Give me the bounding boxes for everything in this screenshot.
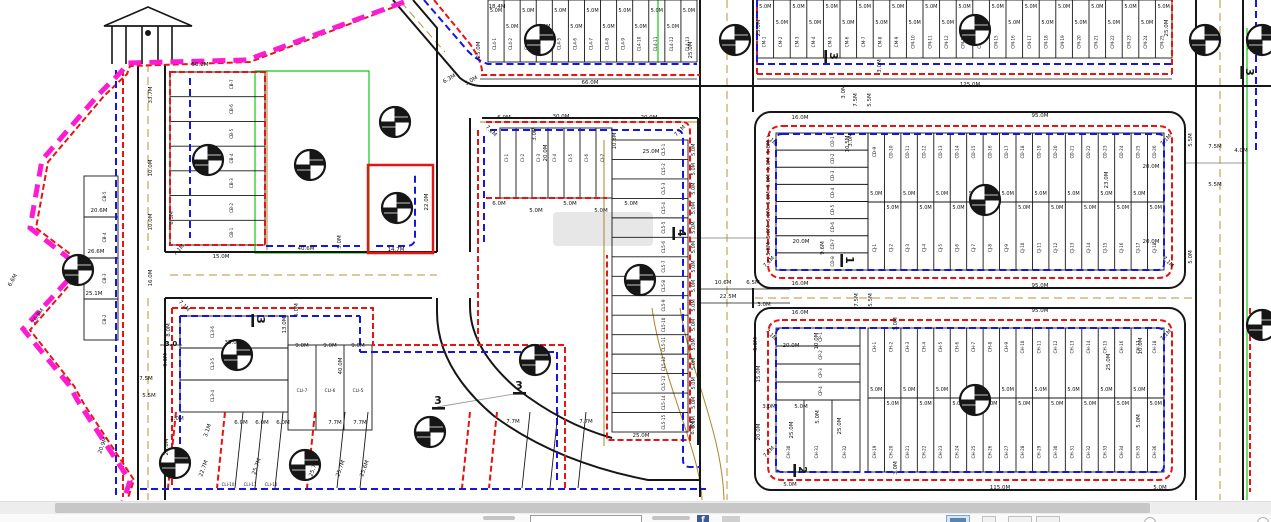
dim-label: CH-10	[1020, 340, 1025, 353]
dim-label: CJ-7	[971, 244, 976, 253]
dim-label: CI-7	[600, 154, 605, 163]
dim-label: 7.7M	[353, 420, 367, 426]
dim-label: 5.0M	[1041, 20, 1053, 26]
dim-label: 5.0M	[1002, 191, 1014, 197]
horizontal-scrollbar[interactable]	[0, 501, 1271, 514]
dim-label: CM-11	[927, 35, 932, 49]
dim-label: 5.0M	[1117, 401, 1129, 407]
dim-label: CH-21	[905, 445, 910, 458]
dim-label: 115.0M	[990, 485, 1011, 491]
dim-label: CD-24	[1119, 145, 1124, 158]
dim-label: 5.0M	[925, 4, 937, 10]
dim-label: CD-15	[971, 145, 976, 158]
dim-label: 5.0M	[766, 225, 772, 239]
dim-label: 5.0M	[691, 319, 697, 331]
dim-label: 7.1M	[673, 124, 687, 138]
dim-label: 3.0	[165, 340, 178, 348]
dim-label: 23.0M	[1104, 171, 1110, 188]
dim-label: 5.0M	[887, 401, 899, 407]
dim-label: CH-32	[1086, 445, 1091, 458]
dim-label: 66.0M	[582, 80, 599, 86]
dim-label: CLI-7	[297, 388, 308, 393]
dim-label: CL4-10	[637, 36, 642, 51]
survey-marker-icon	[720, 25, 750, 55]
dim-label: CJ-3	[905, 244, 910, 253]
survey-marker-icon	[63, 255, 93, 285]
dim-label: CH-30	[786, 445, 791, 458]
dim-label: 15.0M	[756, 365, 762, 382]
dim-label: 95.0M	[1032, 283, 1049, 289]
dim-label: CB-4	[102, 232, 107, 242]
dim-label: 5.0M	[815, 410, 821, 424]
dim-label: CH-32	[842, 445, 847, 458]
dim-label: 16.0M	[792, 310, 809, 316]
dim-label: CD-21	[1070, 145, 1075, 158]
dim-label: 9.0M	[351, 343, 365, 349]
dim-label: 5.0M	[759, 4, 771, 10]
dim-label: CL5-9	[661, 299, 666, 311]
dim-label: 25.6M	[359, 459, 371, 477]
dim-label: CL5-2	[661, 163, 666, 175]
dim-label: 10.0M	[814, 332, 820, 349]
dim-label: CM-12	[944, 35, 949, 49]
dim-label: CB-4	[229, 153, 234, 163]
dim-label: CD-7	[830, 239, 835, 250]
dim-label: CM-24	[1143, 35, 1148, 49]
dim-label: CL4-9	[621, 38, 626, 50]
dim-label: CD-16	[987, 145, 992, 158]
dim-label: CM-4	[811, 36, 816, 47]
dim-label: 30.0M	[553, 114, 570, 120]
dim-label: 5.0M	[1051, 401, 1063, 407]
dim-label: 5.0M	[1136, 414, 1142, 428]
dim-label: 5.0M	[1133, 191, 1145, 197]
scrollbar-thumb[interactable]	[55, 503, 1150, 513]
dim-label: 22.7M	[198, 459, 210, 477]
dim-label: 95.0M	[1032, 308, 1049, 314]
dim-label: 5.5M	[1208, 182, 1222, 188]
dim-label: 5.8M	[766, 140, 772, 154]
dim-label: CD-23	[1102, 145, 1107, 158]
dim-label: CM-2	[778, 36, 783, 47]
dim-label: CH-12	[1053, 340, 1058, 353]
dim-label: CD-4	[830, 187, 835, 198]
tool-icon[interactable]	[1008, 516, 1032, 522]
tool-icon[interactable]	[982, 516, 996, 522]
dim-label: 20.6M	[164, 438, 170, 455]
dim-label: 5.0M	[667, 24, 679, 30]
dim-label: 20.0M	[783, 343, 800, 349]
svg-text:3: 3	[515, 379, 523, 392]
dim-label: 5.0M	[826, 4, 838, 10]
dim-label: 5.0M	[651, 8, 663, 14]
dim-label: CI-3	[536, 154, 541, 163]
dim-label: CM-7	[861, 36, 866, 47]
dim-label: 5.0M	[619, 8, 631, 14]
dim-label: CLI-5	[353, 388, 364, 393]
dim-label: CL4-8	[605, 38, 610, 50]
dim-label: 5.5M	[142, 393, 156, 399]
dim-label: 5.0M	[919, 205, 931, 211]
dim-label: CL3-5	[210, 358, 215, 370]
dim-label: 10.6M	[715, 280, 732, 286]
dim-label: 6.9M	[497, 115, 511, 121]
dim-label: CD-13	[938, 145, 943, 158]
dim-label: CP-2	[818, 350, 823, 360]
dim-label: CP-4	[818, 386, 823, 396]
dim-label: 18.4M	[489, 4, 506, 10]
dim-label: CD-22	[1086, 145, 1091, 158]
survey-marker-icon	[960, 15, 990, 45]
dim-label: CH-25	[971, 445, 976, 458]
dim-label: 6.5M	[746, 280, 760, 286]
lot-block-ci-cols: CI-1CI-2CI-3CI-4CI-5CI-6CI-7	[500, 128, 612, 198]
dim-label: 5.0M	[691, 202, 697, 214]
dim-label: 5.0M	[892, 4, 904, 10]
footer-input[interactable]	[530, 515, 642, 522]
dim-label: CM-23	[1127, 35, 1132, 49]
dim-label: 5.0M	[936, 387, 948, 393]
page-footer: f	[0, 514, 1271, 522]
dim-label: CD-20	[1053, 145, 1058, 158]
gate-symbol	[104, 7, 192, 64]
dim-label: CJ-8	[987, 244, 992, 253]
lot-block-cl4: CL4-15.0MCL4-25.0MCL4-35.0MCL4-45.0MCL4-…	[488, 0, 697, 62]
dim-label: 5.0M	[766, 191, 772, 205]
dim-label: CM-3	[795, 36, 800, 47]
dim-label: 5.0M	[529, 208, 543, 214]
dim-label: 3.0M	[757, 302, 771, 308]
dim-label: 5.0M	[952, 205, 964, 211]
dim-label: 7.1M	[177, 299, 191, 313]
footer-circle-icon[interactable]	[1144, 517, 1156, 522]
dim-label: 6.0M	[276, 420, 290, 426]
dim-label: 5.0M	[1002, 387, 1014, 393]
footer-gray-box	[722, 516, 740, 522]
dim-label: 2.0M	[170, 416, 184, 422]
dim-label: 5.0M	[1100, 191, 1112, 197]
dim-label: CM-15	[994, 35, 999, 49]
dim-label: 15.0M	[213, 254, 230, 260]
dim-label: CH-11	[1037, 340, 1042, 353]
dim-label: CI-4	[552, 154, 557, 163]
dim-label: 5.0M	[1051, 205, 1063, 211]
dim-label: 5.0M	[563, 201, 577, 207]
dim-label: CL4-5	[556, 38, 561, 50]
dim-label: 5.0M	[691, 221, 697, 233]
dim-label: 5.0M	[1150, 401, 1162, 407]
dim-label: 26.6M	[88, 249, 105, 255]
dim-label: 40.6M	[298, 246, 315, 252]
survey-marker-icon	[193, 145, 223, 175]
dim-label: 5.0M	[1188, 250, 1194, 264]
dim-label: 5.0M	[1058, 4, 1070, 10]
dim-label: 5.0M	[624, 201, 638, 207]
dim-label: CH-28	[1020, 445, 1025, 458]
survey-marker-icon	[625, 265, 655, 295]
dim-label: CD-1	[830, 136, 835, 147]
section-marker: 1	[840, 254, 856, 267]
dim-label: 5.0M	[766, 174, 772, 188]
dim-label: CD-10	[889, 145, 894, 158]
dim-label: 125.0M	[960, 82, 981, 88]
dim-label: 5.0M	[783, 482, 797, 488]
dim-label: CH-26	[987, 445, 992, 458]
dim-label: 5.0M	[753, 337, 759, 351]
dim-label: CL5-15	[661, 415, 666, 430]
section-marker: 2	[793, 464, 809, 477]
dim-label: CH-2	[889, 342, 894, 353]
dim-label: CL3-4	[210, 390, 215, 402]
dim-label: 7.7M	[328, 420, 342, 426]
dim-label: 10.8M	[612, 132, 618, 149]
section-marker: 3	[824, 50, 840, 63]
dim-label: 5.0M	[1133, 387, 1145, 393]
dim-label: CL5-4	[661, 202, 666, 214]
dim-label: CL5-12	[661, 356, 666, 371]
dim-label: CL3-6	[210, 326, 215, 338]
dim-label: 9.0M	[295, 343, 309, 349]
dim-label: CM-6	[844, 36, 849, 47]
dim-label: CH-23	[938, 445, 943, 458]
survey-marker-icon	[1247, 310, 1271, 340]
dim-label: 7.1M	[762, 445, 776, 459]
dim-label: CI-2	[520, 154, 525, 163]
dim-label: 3.0M	[532, 127, 538, 141]
dim-label: 3.0M	[762, 404, 776, 410]
svg-text:4: 4	[675, 229, 688, 237]
dim-label: 22.5M	[720, 294, 737, 300]
dim-label: CH-33	[1102, 445, 1107, 458]
dim-label: CL5-6	[661, 241, 666, 253]
dim-label: 20.0M	[641, 115, 658, 121]
dim-label: 5.0M	[859, 4, 871, 10]
dim-label: 3.0M	[893, 317, 899, 331]
dim-label: CD-19	[1037, 145, 1042, 158]
dim-label: CM-21	[1093, 35, 1098, 49]
dim-label: 7.5M	[1208, 144, 1222, 150]
dim-label: CJ-13	[1070, 242, 1075, 253]
dim-label: CLI-6	[325, 388, 336, 393]
dim-label: 5.0M	[1018, 401, 1030, 407]
dim-label: 16.0M	[792, 281, 809, 287]
dim-label: 5.0M	[691, 280, 697, 292]
dim-label: 33.7M	[148, 86, 154, 103]
dim-label: 5.0M	[1084, 401, 1096, 407]
dim-label: CH-20	[889, 445, 894, 458]
dim-label: CL5-11	[661, 337, 666, 352]
footer-text-blur	[483, 516, 515, 520]
dim-label: CB-7	[229, 79, 234, 89]
dim-label: 20.0M	[793, 239, 810, 245]
dim-label: 5.0M	[691, 144, 697, 156]
svg-text:3: 3	[434, 394, 442, 407]
dim-label: CM-19	[1060, 35, 1065, 49]
dim-label: CD-2	[830, 153, 835, 164]
dim-label: CD-17	[1004, 145, 1009, 158]
dim-label: 10.5M	[845, 135, 851, 152]
dim-label: 5.0M	[506, 24, 518, 30]
dim-label: 10.0M	[148, 213, 154, 230]
plan-viewport: CL4-15.0MCL4-25.0MCL4-35.0MCL4-45.0MCL4-…	[0, 0, 1271, 501]
dim-label: 5.0M	[903, 191, 915, 197]
tool-icon[interactable]	[1036, 516, 1060, 522]
dim-label: 6.6M	[7, 273, 19, 288]
dim-label: 6.0M	[492, 201, 506, 207]
dim-label: CH-13	[1070, 340, 1075, 353]
section-marker: 3	[251, 314, 267, 327]
dim-label: CH-34	[1119, 445, 1124, 458]
dim-label: 5.0M	[887, 205, 899, 211]
dim-label: CB-5	[229, 128, 234, 138]
dim-label: CM-16	[1010, 35, 1015, 49]
dim-label: 25.1M	[86, 291, 103, 297]
dim-label: CJ-1	[872, 244, 877, 253]
dim-label: 5.0M	[870, 191, 882, 197]
dim-label: 5.0M	[1158, 4, 1170, 10]
survey-marker-icon	[1190, 25, 1220, 55]
survey-marker-icon	[520, 345, 550, 375]
survey-marker-icon	[960, 385, 990, 415]
dim-label: CJ-6	[954, 244, 959, 253]
dim-label: 25.7M	[335, 459, 347, 477]
dim-label: CLI-11	[244, 482, 257, 487]
dim-label: 5.0M	[683, 8, 695, 14]
dim-label: CM-9	[894, 36, 899, 47]
dim-label: CH-6	[954, 342, 959, 353]
dim-label: CH-5	[938, 342, 943, 353]
dim-label: 4.0M	[1234, 148, 1248, 154]
dim-label: 5.0M	[691, 397, 697, 409]
survey-marker-icon	[380, 107, 410, 137]
dim-label: CH-19	[872, 445, 877, 458]
dim-label: 5.0M	[1008, 20, 1020, 26]
dim-label: 5.0M	[958, 4, 970, 10]
dim-label: CH-31	[1070, 445, 1075, 458]
dim-label: CJ-5	[938, 244, 943, 253]
dim-label: CD-5	[830, 205, 835, 216]
dim-label: 5.5M	[868, 293, 874, 307]
dim-label: CB-3	[102, 273, 107, 283]
dim-label: CL4-1	[492, 38, 497, 50]
dim-label: CL4-12	[669, 36, 674, 51]
dim-label: 5.0M	[1117, 205, 1129, 211]
dim-label: 25.0M	[837, 417, 843, 434]
dim-label: 40.0M	[338, 357, 344, 374]
facebook-icon[interactable]: f	[697, 515, 709, 522]
dim-label: 6.0M	[234, 420, 248, 426]
dim-label: CL4-2	[508, 38, 513, 50]
dim-label: 25.0M	[688, 41, 694, 58]
dim-label: 5.0M	[586, 8, 598, 14]
dim-label: CB-2	[229, 203, 234, 213]
dim-label: 5.0M	[691, 163, 697, 175]
dim-label: 20.0M	[543, 144, 549, 161]
dim-label: CD-18	[1020, 145, 1025, 158]
dim-label: 5.0M	[602, 24, 614, 30]
dim-label: 3.1M	[203, 423, 213, 438]
dim-label: 5.0M	[1067, 387, 1079, 393]
dim-label: 5.0M	[1124, 4, 1136, 10]
dim-label: 6.5M	[169, 211, 175, 225]
dim-label: CL4-7	[589, 38, 594, 50]
dim-label: 5.0M	[1067, 191, 1079, 197]
dim-label: CH-14	[1086, 340, 1091, 353]
dim-label: CL5-8	[661, 280, 666, 292]
dim-label: CJ-17	[1135, 242, 1140, 253]
dim-label: 5.0M	[794, 404, 808, 410]
dim-label: CM-18	[1044, 35, 1049, 49]
dim-label: CJ-15	[1102, 242, 1107, 253]
dim-label: 5.0M	[792, 4, 804, 10]
dim-label: 8.0M	[690, 421, 696, 435]
dim-label: CD-12	[922, 145, 927, 158]
dim-label: 25.0M	[789, 421, 795, 438]
dim-label: CI-1	[504, 154, 509, 163]
dim-label: 5.0M	[1035, 191, 1047, 197]
dim-label: 5.0M	[870, 387, 882, 393]
dim-label: 5.0M	[594, 208, 608, 214]
active-tool-icon[interactable]	[946, 515, 970, 522]
section-marker: 3	[432, 394, 445, 410]
dim-label: CB-3	[229, 178, 234, 188]
dim-label: 5.0M	[1018, 205, 1030, 211]
dim-label: CH-7	[971, 342, 976, 353]
dim-label: 5.0M	[691, 260, 697, 272]
dim-label: CJ-4	[922, 244, 927, 253]
dim-label: 5.0M	[691, 338, 697, 350]
dim-label: CD-26	[1152, 145, 1157, 158]
dim-label: 8.0M	[166, 323, 172, 337]
dim-label: 13.0M	[282, 316, 288, 333]
dim-label: 9.6M	[820, 241, 826, 255]
dim-label: CJ-10	[1020, 242, 1025, 253]
dim-label: CL4-6	[572, 38, 577, 50]
dim-label: 5.0M	[919, 401, 931, 407]
dim-label: CL4-11	[653, 36, 658, 51]
dim-label: CI-6	[584, 154, 589, 163]
dim-label: 25.0M	[633, 433, 650, 439]
dim-label: 5.0M	[1084, 205, 1096, 211]
dim-label: 5.0M	[1025, 4, 1037, 10]
dim-label: 5.0M	[1075, 20, 1087, 26]
survey-marker-icon	[1247, 25, 1271, 55]
lot-block-cli-cols: CLI-7CLI-6CLI-5	[288, 345, 372, 430]
dim-label: 20.9M	[97, 436, 109, 454]
dim-label: CD-14	[954, 145, 959, 158]
dim-label: 5.0M	[691, 183, 697, 195]
dim-label: 5.0M	[691, 377, 697, 389]
section-cut-lines	[437, 163, 1246, 407]
dim-label: CD-9	[872, 147, 877, 158]
dim-label: 3.0M	[893, 461, 899, 475]
dim-label: 5.0M	[875, 20, 887, 26]
dim-label: CH-30	[1053, 445, 1058, 458]
section-marker: 3	[1240, 66, 1256, 79]
dim-label: 6.3M	[442, 73, 457, 85]
dim-label: CI-5	[568, 154, 573, 163]
dim-label: CD-11	[905, 145, 910, 158]
survey-marker-icon	[295, 150, 325, 180]
footer-circle-icon[interactable]	[1257, 517, 1269, 522]
dim-label: 5.0M	[337, 235, 343, 249]
dim-label: 16.0M	[148, 269, 154, 286]
dim-label: 7.5M	[854, 293, 860, 307]
dim-label: 5.0M	[1141, 20, 1153, 26]
dim-label: 10.0M	[148, 159, 154, 176]
svg-text:3: 3	[827, 52, 840, 60]
dim-label: 5.0M	[809, 20, 821, 26]
